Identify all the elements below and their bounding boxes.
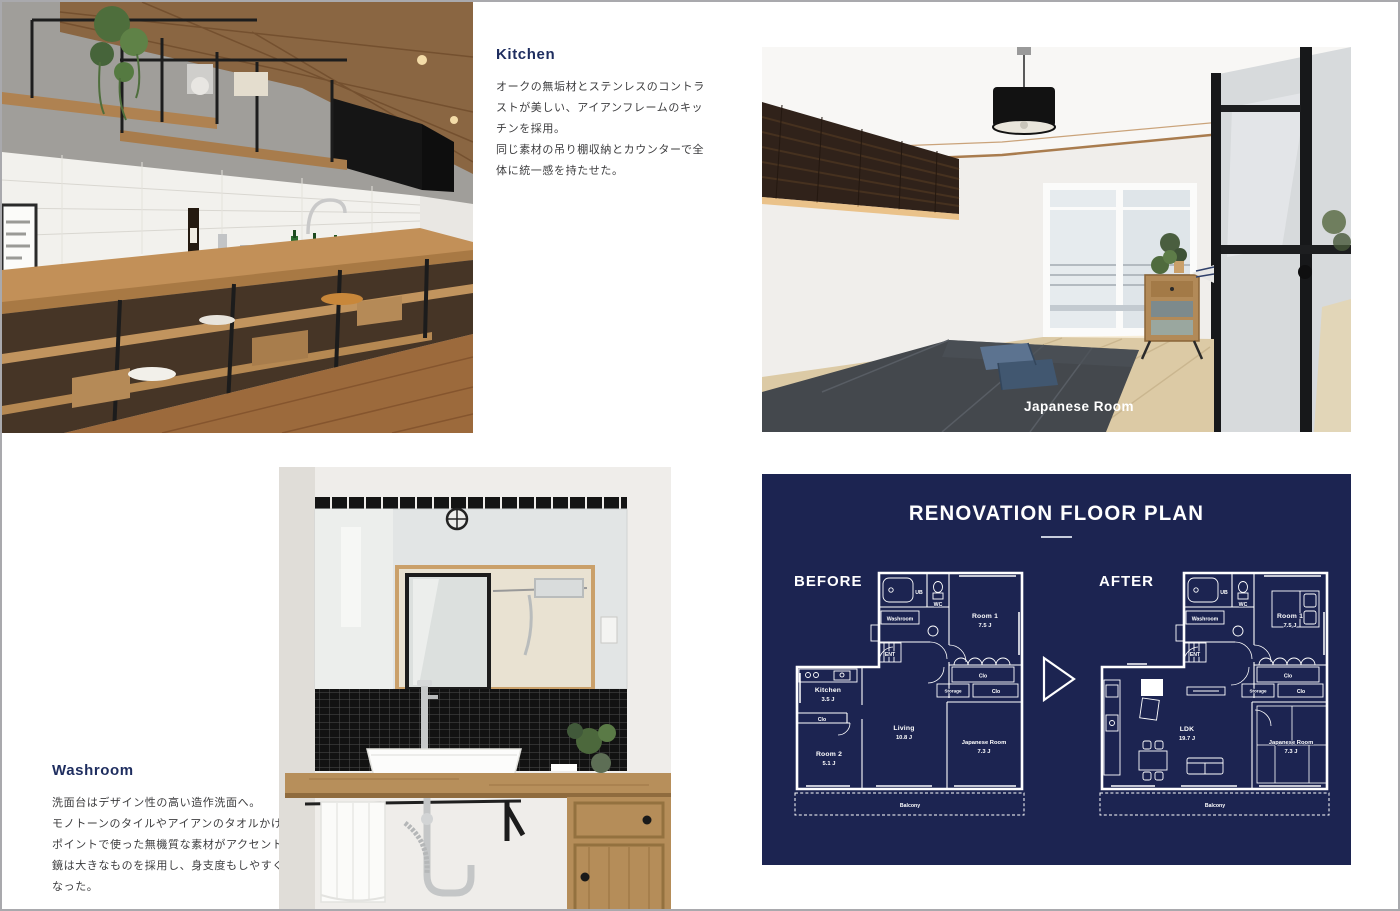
washroom-title: Washroom bbox=[52, 762, 312, 779]
kitchen-photo bbox=[2, 2, 473, 433]
washroom-photo bbox=[279, 467, 671, 911]
japanese-room-photo: Japanese Room bbox=[762, 47, 1351, 432]
washroom-text-line: なった。 bbox=[52, 877, 312, 898]
room-label-clo: Clo bbox=[818, 717, 826, 723]
room-label-washroom: Washroom bbox=[887, 617, 914, 623]
room-label-clo: Clo bbox=[992, 689, 1000, 695]
basin-icon bbox=[928, 626, 938, 636]
room-size-room1: 7.5 J bbox=[1284, 623, 1297, 629]
bed-icon bbox=[1272, 591, 1319, 627]
room-label-japanese: Japanese Room bbox=[1269, 740, 1313, 746]
washroom-section: Washroom 洗面台はデザイン性の高い造作洗面へ。 モノトーンのタイルやアイ… bbox=[52, 762, 312, 898]
room-label-storage: Storage bbox=[944, 689, 962, 694]
room-size-japanese: 7.3 J bbox=[1285, 749, 1298, 755]
basin-icon bbox=[1233, 626, 1243, 636]
dining-table-icon bbox=[1139, 741, 1167, 780]
kitchen-text-line: オークの無垢材とステンレスのコントラ bbox=[496, 77, 696, 98]
glass-partition bbox=[1211, 47, 1351, 432]
after-labels: UB WC Washroom ENT Room 1 7.5 J Clo Stor… bbox=[1179, 590, 1313, 809]
room-label-balcony: Balcony bbox=[900, 803, 920, 809]
kitchen-text-line: チンを採用。 bbox=[496, 119, 696, 140]
washroom-photo-art bbox=[279, 467, 671, 911]
room-size-kitchen: 3.5 J bbox=[822, 697, 835, 703]
toilet-icon bbox=[934, 582, 943, 593]
kitchen-photo-art bbox=[2, 2, 473, 433]
before-labels: UB WC Washroom ENT Room 1 7.5 J Clo Stor… bbox=[815, 590, 1006, 809]
japanese-room-label: Japanese Room bbox=[1024, 399, 1134, 414]
before-floor-plan: BEFORE bbox=[792, 567, 1037, 823]
room-label-clo: Clo bbox=[1297, 689, 1305, 695]
room-size-japanese: 7.3 J bbox=[978, 749, 991, 755]
japanese-room-photo-art: Japanese Room bbox=[762, 47, 1351, 432]
room-label-room1: Room 1 bbox=[972, 613, 998, 620]
cabinet bbox=[567, 797, 671, 911]
kitchen-text-line: ストが美しい、アイアンフレームのキッ bbox=[496, 98, 696, 119]
after-floor-plan: AFTER bbox=[1097, 567, 1342, 823]
before-after-arrow-icon bbox=[1042, 656, 1078, 702]
room-size-living: 10.8 J bbox=[896, 735, 912, 741]
mirror bbox=[315, 503, 627, 689]
toilet-icon bbox=[1239, 582, 1248, 593]
after-heading: AFTER bbox=[1099, 573, 1154, 590]
room-label-wc: WC bbox=[934, 602, 943, 608]
before-heading: BEFORE bbox=[794, 573, 863, 590]
after-walls bbox=[1102, 573, 1327, 789]
wall-stub bbox=[1141, 679, 1163, 696]
room-label-ldk: LDK bbox=[1180, 726, 1195, 733]
floor-plan-panel: RENOVATION FLOOR PLAN BEFORE bbox=[762, 474, 1351, 865]
washroom-text-line: モノトーンのタイルやアイアンのタオルかけなど bbox=[52, 814, 312, 835]
kitchen-section: Kitchen オークの無垢材とステンレスのコントラ ストが美しい、アイアンフレ… bbox=[496, 46, 696, 182]
room-label-japanese: Japanese Room bbox=[962, 740, 1006, 746]
room-label-ub: UB bbox=[1220, 590, 1228, 596]
room-size-ldk: 19.7 J bbox=[1179, 736, 1195, 742]
washroom-text-line: 鏡は大きなものを採用し、身支度もしやすく bbox=[52, 856, 312, 877]
title-divider bbox=[1041, 536, 1072, 538]
counter bbox=[285, 773, 671, 798]
room-label-ent: ENT bbox=[1190, 652, 1201, 658]
floor-plan-title: RENOVATION FLOOR PLAN bbox=[771, 502, 1342, 526]
room-label-kitchen: Kitchen bbox=[815, 687, 841, 694]
room-label-wc: WC bbox=[1239, 602, 1248, 608]
fridge-icon bbox=[1140, 698, 1160, 720]
room-label-clo: Clo bbox=[979, 674, 987, 680]
bathtub-icon bbox=[883, 578, 913, 602]
washroom-text-line: ポイントで使った無機質な素材がアクセントに。 bbox=[52, 835, 312, 856]
room-label-living: Living bbox=[893, 725, 914, 732]
room-label-ub: UB bbox=[915, 590, 923, 596]
washroom-text-line: 洗面台はデザイン性の高い造作洗面へ。 bbox=[52, 793, 312, 814]
room-label-room1: Room 1 bbox=[1277, 613, 1303, 620]
room-label-clo: Clo bbox=[1284, 674, 1292, 680]
room-size-room1: 7.5 J bbox=[979, 623, 992, 629]
room-label-balcony: Balcony bbox=[1205, 803, 1225, 809]
room-label-storage: Storage bbox=[1249, 689, 1267, 694]
room-size-room2: 5.1 J bbox=[823, 761, 836, 767]
room-label-ent: ENT bbox=[885, 652, 896, 658]
bathtub-icon bbox=[1188, 578, 1218, 602]
room-label-washroom: Washroom bbox=[1192, 617, 1219, 623]
brochure-page: Kitchen オークの無垢材とステンレスのコントラ ストが美しい、アイアンフレ… bbox=[0, 0, 1400, 911]
kitchen-text-line: 同じ素材の吊り棚収納とカウンターで全 bbox=[496, 140, 696, 161]
kitchen-text-line: 体に統一感を持たせた。 bbox=[496, 161, 696, 182]
room-label-room2: Room 2 bbox=[816, 751, 842, 758]
kitchen-title: Kitchen bbox=[496, 46, 696, 63]
sofa-icon bbox=[1187, 758, 1223, 774]
